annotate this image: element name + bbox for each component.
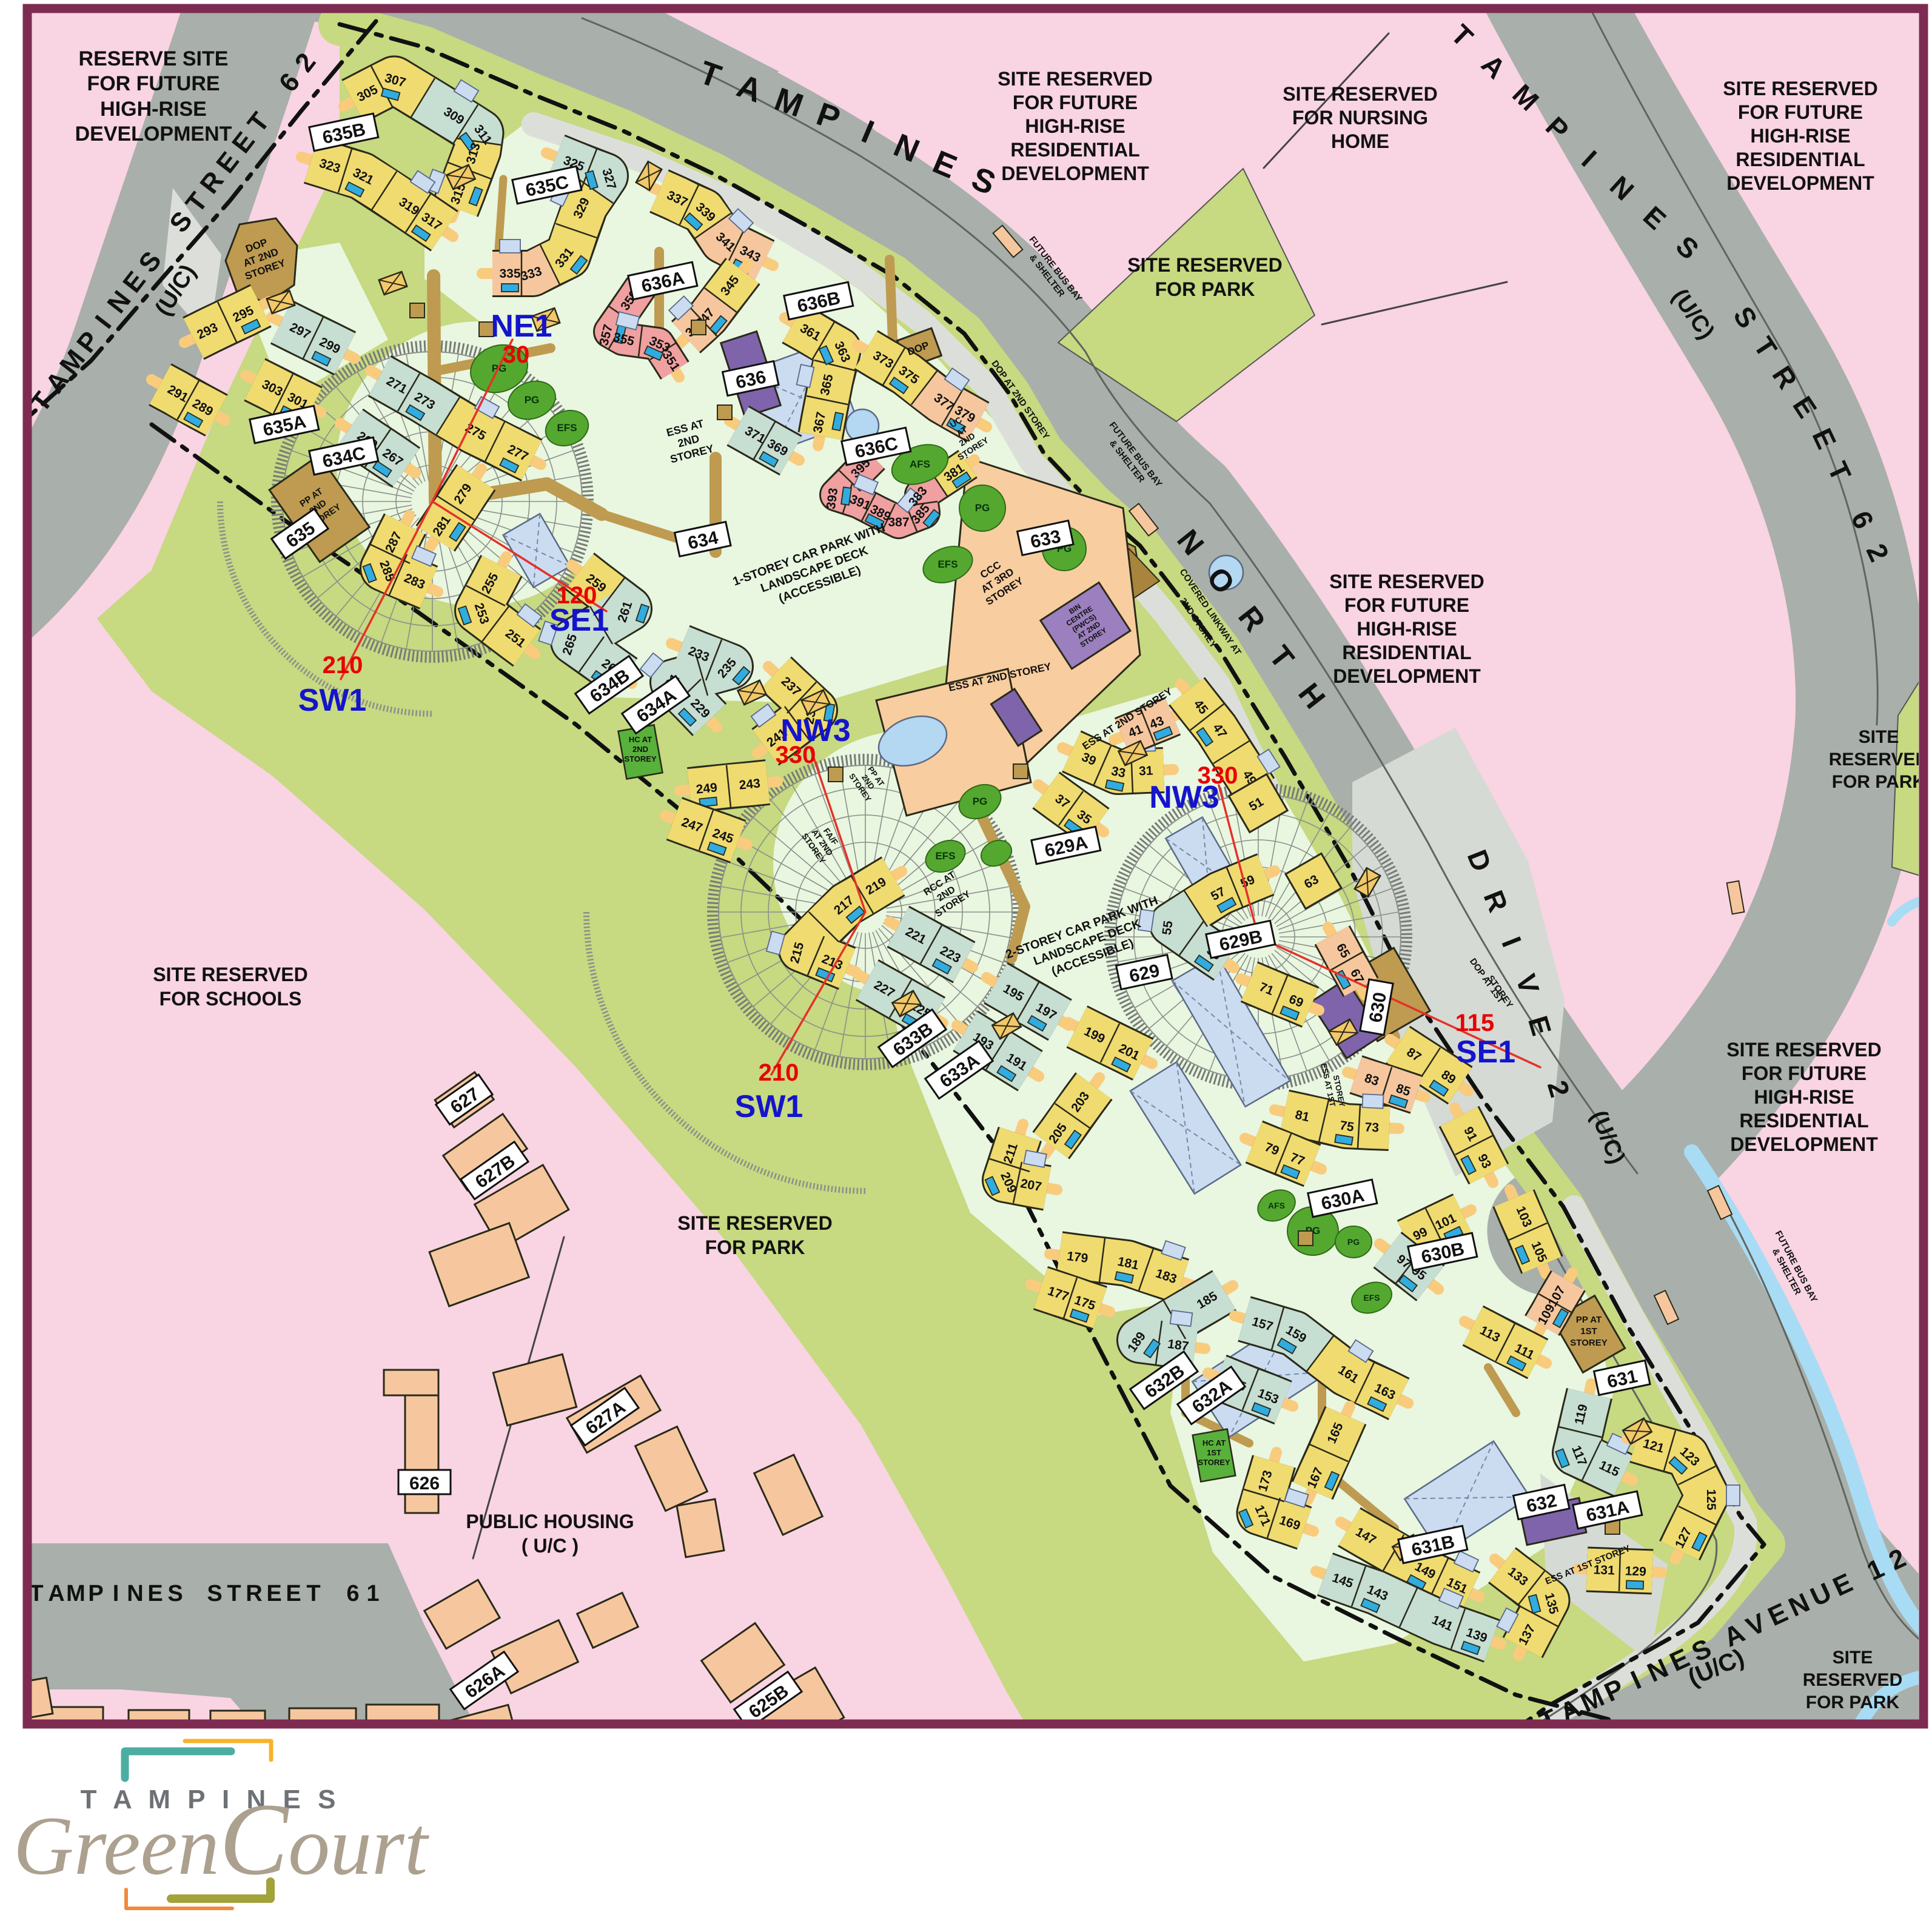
svg-text:55: 55 (1160, 920, 1176, 936)
svg-text:HC AT: HC AT (629, 735, 652, 744)
svg-text:626: 626 (409, 1474, 440, 1494)
svg-text:E: E (266, 1581, 281, 1606)
svg-text:AFS: AFS (1268, 1201, 1285, 1210)
svg-text:E: E (147, 1581, 163, 1606)
svg-text:FOR PARK: FOR PARK (705, 1236, 805, 1258)
svg-text:RESERVED: RESERVED (1829, 750, 1929, 770)
svg-text:330: 330 (1198, 762, 1238, 789)
svg-text:335: 335 (499, 267, 520, 281)
svg-text:PG: PG (525, 394, 540, 406)
svg-text:DEVELOPMENT: DEVELOPMENT (1726, 172, 1874, 194)
svg-text:115: 115 (1455, 1010, 1495, 1036)
svg-text:SE1: SE1 (549, 603, 609, 638)
svg-text:393: 393 (824, 487, 841, 510)
svg-text:N: N (127, 1581, 143, 1606)
svg-text:I: I (113, 1581, 119, 1606)
svg-text:SW1: SW1 (735, 1089, 803, 1124)
svg-text:PUBLIC HOUSING: PUBLIC HOUSING (466, 1511, 634, 1532)
svg-text:A: A (48, 1581, 64, 1606)
svg-text:STOREY: STOREY (1570, 1338, 1607, 1348)
svg-text:125: 125 (1704, 1489, 1718, 1510)
svg-text:STOREY: STOREY (1198, 1458, 1230, 1467)
svg-text:210: 210 (759, 1059, 799, 1086)
svg-text:FOR FUTURE: FOR FUTURE (1013, 92, 1138, 113)
svg-text:SE1: SE1 (1456, 1035, 1515, 1070)
svg-text:187: 187 (1167, 1337, 1190, 1353)
svg-text:SITE RESERVED: SITE RESERVED (998, 68, 1152, 90)
svg-text:STOREY: STOREY (624, 754, 657, 763)
svg-text:33: 33 (1110, 764, 1127, 780)
svg-text:SITE RESERVED: SITE RESERVED (1329, 571, 1484, 592)
svg-text:EFS: EFS (1363, 1293, 1380, 1303)
svg-text:FOR PARK: FOR PARK (1155, 278, 1255, 300)
svg-text:HIGH-RISE: HIGH-RISE (100, 98, 207, 121)
svg-text:SW1: SW1 (298, 683, 367, 718)
svg-text:75: 75 (1339, 1118, 1355, 1135)
svg-text:HIGH-RISE: HIGH-RISE (1754, 1086, 1854, 1108)
svg-text:SITE: SITE (1859, 727, 1899, 747)
svg-text:FOR FUTURE: FOR FUTURE (1738, 101, 1863, 123)
svg-text:SITE RESERVED: SITE RESERVED (1726, 1039, 1881, 1061)
svg-text:31: 31 (1139, 764, 1154, 779)
svg-text:FOR NURSING: FOR NURSING (1292, 107, 1428, 129)
svg-text:RESIDENTIAL: RESIDENTIAL (1342, 642, 1471, 663)
svg-text:S: S (167, 1581, 183, 1606)
svg-text:S: S (207, 1581, 222, 1606)
svg-text:( U/C ): ( U/C ) (522, 1535, 579, 1557)
svg-text:387: 387 (888, 515, 909, 529)
svg-text:RESERVE SITE: RESERVE SITE (79, 47, 229, 70)
svg-text:E: E (286, 1581, 301, 1606)
svg-text:HIGH-RISE: HIGH-RISE (1025, 115, 1125, 137)
svg-text:HOME: HOME (1331, 130, 1389, 152)
svg-text:2ND: 2ND (632, 745, 648, 754)
svg-text:PG: PG (973, 796, 988, 807)
svg-text:DEVELOPMENT: DEVELOPMENT (1333, 665, 1481, 687)
svg-text:R: R (246, 1581, 262, 1606)
svg-text:243: 243 (739, 776, 761, 792)
svg-text:HIGH-RISE: HIGH-RISE (1750, 125, 1850, 147)
svg-text:330: 330 (776, 742, 816, 768)
svg-text:DEVELOPMENT: DEVELOPMENT (75, 122, 232, 146)
svg-text:HC AT: HC AT (1202, 1438, 1226, 1447)
svg-text:SITE RESERVED: SITE RESERVED (153, 964, 307, 985)
svg-text:129: 129 (1625, 1564, 1646, 1578)
svg-text:179: 179 (1066, 1249, 1089, 1266)
svg-text:SITE RESERVED: SITE RESERVED (1127, 254, 1282, 276)
svg-text:FOR SCHOOLS: FOR SCHOOLS (159, 988, 302, 1010)
svg-text:P: P (88, 1581, 103, 1606)
svg-text:RESERVED: RESERVED (1803, 1670, 1903, 1690)
svg-text:210: 210 (323, 652, 363, 679)
svg-text:M: M (66, 1581, 86, 1606)
svg-text:T: T (306, 1581, 320, 1606)
svg-text:EFS: EFS (557, 422, 577, 434)
svg-text:FOR FUTURE: FOR FUTURE (1742, 1062, 1867, 1084)
svg-text:RESIDENTIAL: RESIDENTIAL (1739, 1110, 1868, 1132)
svg-text:T: T (227, 1581, 241, 1606)
svg-text:NE1: NE1 (491, 309, 552, 344)
svg-text:30: 30 (503, 341, 530, 368)
svg-text:EFS: EFS (935, 850, 955, 862)
svg-text:HIGH-RISE: HIGH-RISE (1357, 618, 1457, 640)
svg-text:DEVELOPMENT: DEVELOPMENT (1001, 163, 1149, 184)
svg-text:FOR PARK: FOR PARK (1806, 1692, 1900, 1712)
svg-text:SITE: SITE (1833, 1648, 1873, 1668)
svg-text:1ST: 1ST (1580, 1326, 1597, 1337)
svg-text:73: 73 (1364, 1120, 1379, 1135)
svg-text:RESIDENTIAL: RESIDENTIAL (1736, 149, 1865, 170)
svg-text:SITE RESERVED: SITE RESERVED (1723, 78, 1877, 99)
svg-text:SITE RESERVED: SITE RESERVED (677, 1212, 832, 1234)
svg-text:AFS: AFS (910, 458, 930, 470)
svg-text:RESIDENTIAL: RESIDENTIAL (1010, 139, 1139, 161)
svg-text:FOR FUTURE: FOR FUTURE (87, 72, 220, 95)
svg-text:DEVELOPMENT: DEVELOPMENT (1730, 1133, 1878, 1155)
svg-text:FOR FUTURE: FOR FUTURE (1344, 594, 1469, 616)
svg-text:6: 6 (346, 1581, 359, 1606)
svg-text:SITE RESERVED: SITE RESERVED (1283, 83, 1437, 105)
svg-text:1: 1 (366, 1581, 379, 1606)
svg-text:FOR PARK: FOR PARK (1832, 772, 1926, 792)
svg-text:249: 249 (696, 780, 718, 796)
svg-text:1ST: 1ST (1207, 1448, 1221, 1457)
svg-text:PG: PG (1347, 1237, 1360, 1247)
svg-text:PP AT: PP AT (1576, 1315, 1602, 1325)
svg-text:EFS: EFS (937, 558, 958, 570)
svg-text:PG: PG (975, 502, 990, 514)
svg-text:GreenCourt: GreenCourt (13, 1782, 430, 1896)
